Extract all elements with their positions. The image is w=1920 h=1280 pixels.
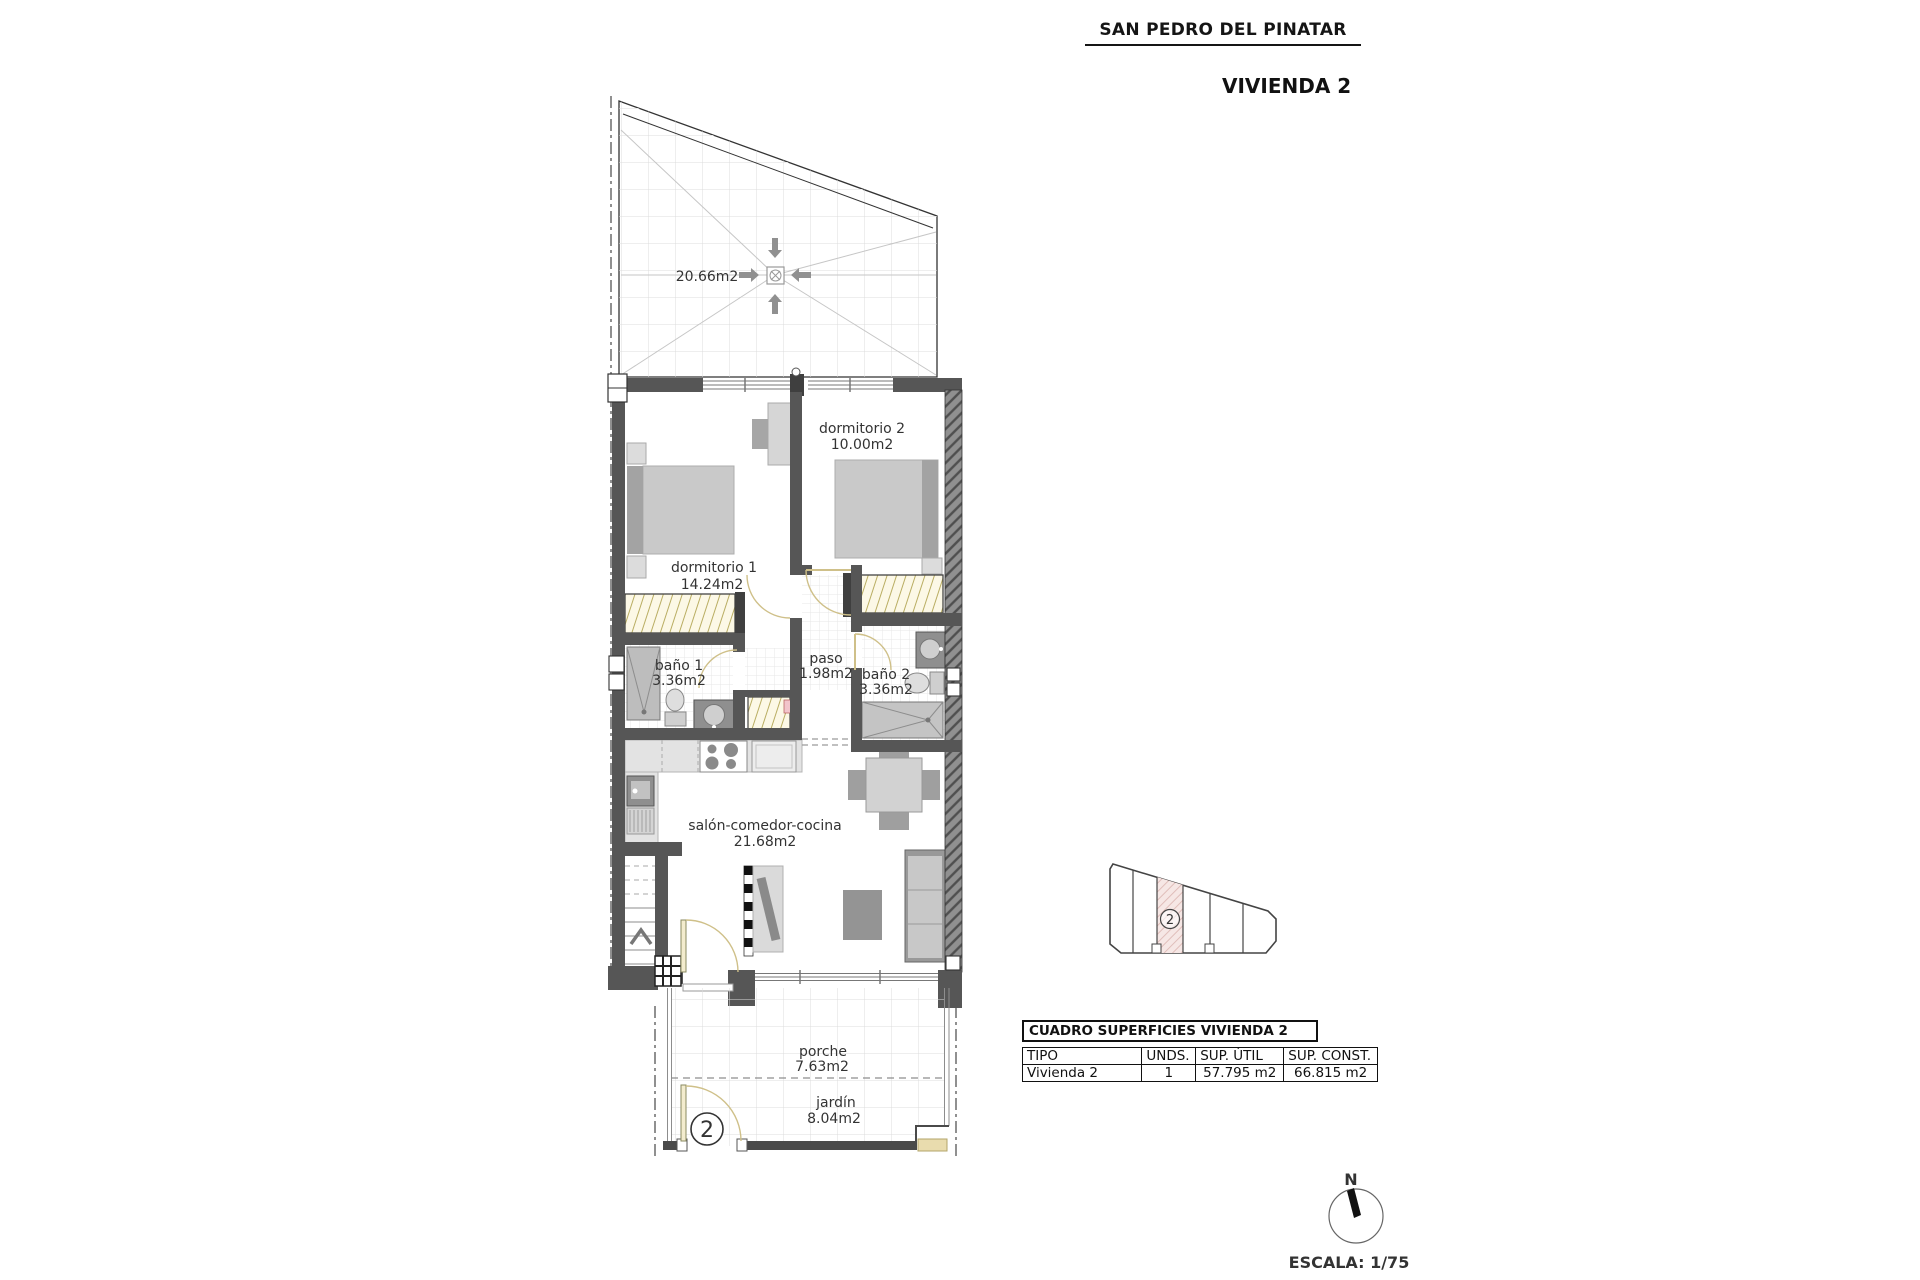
north-label: N xyxy=(1344,1170,1357,1189)
sofa xyxy=(905,850,950,962)
col-sup-const: SUP. CONST. xyxy=(1284,1048,1378,1065)
cell-tipo: Vivienda 2 xyxy=(1023,1065,1142,1082)
surface-table-header-row: TIPO UNDS. SUP. ÚTIL SUP. CONST. xyxy=(1023,1048,1378,1065)
label-dormitorio2-name: dormitorio 2 xyxy=(819,421,905,437)
col-tipo: TIPO xyxy=(1023,1048,1142,1065)
floor-plan-drawing: 20.66m2 xyxy=(0,0,1920,1280)
compass: N xyxy=(1329,1170,1383,1243)
kitchen-sink-icon xyxy=(627,776,654,834)
site-plan: 2 xyxy=(1110,864,1276,953)
label-porche-name: porche xyxy=(799,1044,847,1060)
col-sup-util: SUP. ÚTIL xyxy=(1196,1048,1284,1065)
label-salon-area: 21.68m2 xyxy=(734,834,797,850)
label-dormitorio1-area: 14.24m2 xyxy=(681,577,744,593)
roof-terrace: 20.66m2 xyxy=(619,101,937,377)
label-bano2-area: 3.36m2 xyxy=(859,682,913,698)
label-dormitorio2-area: 10.00m2 xyxy=(831,437,894,453)
plan-sheet: SAN PEDRO DEL PINATAR VIVIENDA 2 xyxy=(0,0,1920,1280)
surface-table-grid: TIPO UNDS. SUP. ÚTIL SUP. CONST. Viviend… xyxy=(1022,1047,1378,1082)
bed-dormitorio-2 xyxy=(835,460,942,574)
unit-number-badge: 2 xyxy=(691,1113,723,1145)
label-jardin-area: 8.04m2 xyxy=(807,1111,861,1127)
scale-label: ESCALA: 1/75 xyxy=(1289,1253,1410,1272)
svg-text:2: 2 xyxy=(700,1118,714,1143)
roof-terrace-area-label: 20.66m2 xyxy=(676,269,739,285)
hob-icon xyxy=(700,741,747,772)
label-jardin-name: jardín xyxy=(815,1095,856,1111)
label-bano1-area: 3.36m2 xyxy=(652,673,706,689)
label-dormitorio1-name: dormitorio 1 xyxy=(671,560,757,576)
compass-needle-icon xyxy=(1347,1188,1361,1218)
coffee-table xyxy=(843,890,882,940)
label-porche-area: 7.63m2 xyxy=(795,1059,849,1075)
roof-drain-icon xyxy=(767,267,784,284)
label-paso-name: paso xyxy=(809,651,842,667)
col-unds: UNDS. xyxy=(1142,1048,1196,1065)
fridge-icon xyxy=(752,741,796,772)
tv-unit xyxy=(744,866,783,956)
cell-unds: 1 xyxy=(1142,1065,1196,1082)
label-paso-area: 1.98m2 xyxy=(799,666,853,682)
surface-table: CUADRO SUPERFICIES VIVIENDA 2 TIPO UNDS.… xyxy=(1022,1020,1378,1082)
surface-table-row: Vivienda 2 1 57.795 m2 66.815 m2 xyxy=(1023,1065,1378,1082)
label-salon-name: salón-comedor-cocina xyxy=(688,818,841,834)
label-bano1-name: baño 1 xyxy=(655,658,703,674)
label-bano2-name: baño 2 xyxy=(862,667,910,683)
site-plan-unit-number: 2 xyxy=(1166,913,1174,928)
cell-sup-const: 66.815 m2 xyxy=(1284,1065,1378,1082)
cell-sup-util: 57.795 m2 xyxy=(1196,1065,1284,1082)
surface-table-title: CUADRO SUPERFICIES VIVIENDA 2 xyxy=(1022,1020,1318,1042)
